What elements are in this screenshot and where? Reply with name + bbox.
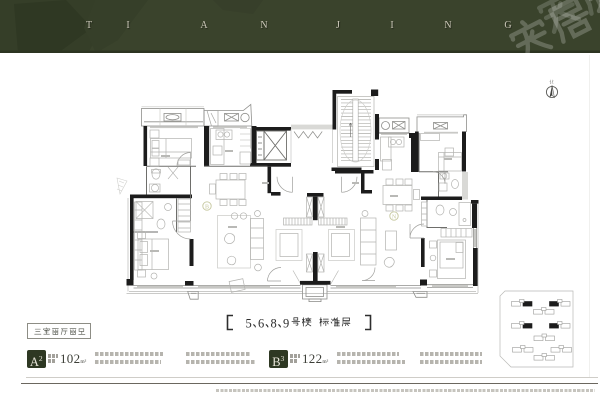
svg-text:B: B <box>205 204 209 210</box>
svg-text:5: 5 <box>246 317 252 331</box>
svg-text:8: 8 <box>271 317 277 331</box>
svg-text:6: 6 <box>258 317 264 331</box>
svg-text:9: 9 <box>283 317 289 331</box>
svg-text:N: N <box>392 214 397 220</box>
